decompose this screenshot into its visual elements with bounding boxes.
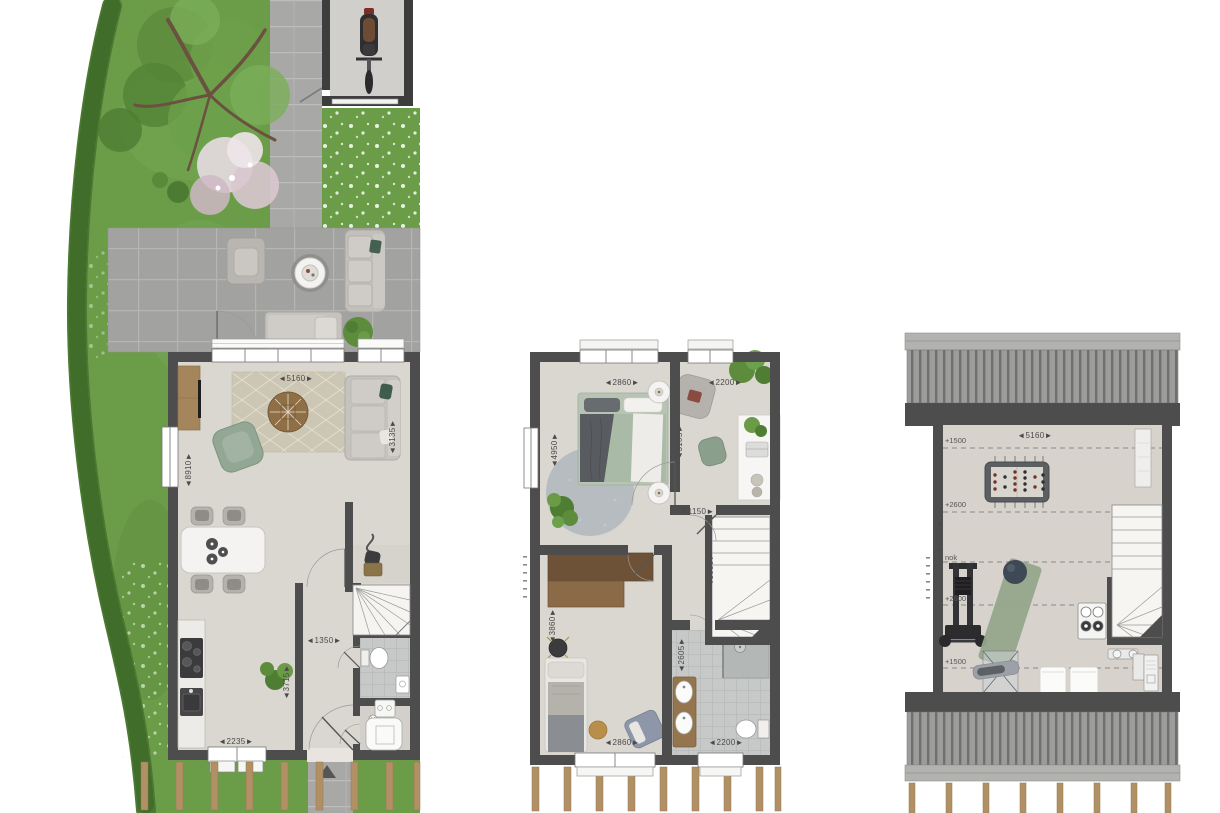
house-ground-floor (162, 339, 420, 778)
dim-bathroom-depth: ◄2605► (678, 637, 686, 672)
first-floor-drawing (520, 330, 790, 813)
laptop-icon (746, 442, 768, 457)
toilet-icon (370, 648, 388, 669)
master-bed (578, 393, 668, 485)
washbasin-small (396, 676, 409, 693)
dim-bathroom-width: ◄2200► (708, 739, 743, 747)
outdoor-sofa (345, 230, 385, 312)
dim-attic-width: ◄5160► (1017, 432, 1052, 440)
dim-bedroom1-width: ◄2860► (604, 379, 639, 387)
dim-ground-depth: ◄8910► (185, 452, 193, 487)
bush (167, 181, 189, 203)
dim-ground-width: ◄5160► (278, 375, 313, 383)
dim-hall-width: ◄1350► (306, 637, 341, 645)
ground-floor-drawing (60, 0, 430, 813)
height-line-label-1500-upper: +1500 (945, 437, 966, 445)
dim-bedroom2-depth: ◄3860► (549, 608, 557, 643)
height-line-label-2600-upper: +2600 (945, 501, 966, 509)
pouf (589, 721, 607, 739)
dim-bedroom1-depth: ◄4950► (551, 432, 559, 467)
dim-hall-depth: ◄3715► (283, 664, 291, 699)
wall-cabinet (1135, 429, 1151, 487)
floorplan-sheet: ◄5160► ◄8910► ◄3135► ◄1350► ◄3715► ◄2235… (0, 0, 1220, 813)
dim-landing-width: ◄1150► (680, 508, 715, 516)
ridge-label: nok (945, 554, 957, 562)
foundation-piles (532, 767, 781, 811)
nightstand-bottom (648, 482, 670, 504)
outdoor-coffee-table (291, 254, 329, 292)
plan-ground-floor: ◄5160► ◄8910► ◄3135► ◄1350► ◄3715► ◄2235… (60, 0, 430, 813)
dim-kitchen-window: ◄2235► (218, 738, 253, 746)
attic-drawing (895, 325, 1190, 813)
small-annotation-marks (523, 556, 527, 598)
toilet-icon (736, 720, 756, 738)
single-bed (545, 658, 587, 752)
window-bedroom1 (580, 350, 658, 363)
dim-office-width: ◄2200► (707, 379, 742, 387)
roof-edge-top (905, 333, 1180, 426)
front-path (308, 760, 353, 813)
dim-stair-depth: ◄3000► (707, 552, 715, 587)
window-bathroom (698, 753, 743, 767)
staircase (353, 585, 410, 635)
washbasin-1 (676, 681, 693, 703)
dim-attic-depth: ◄6205► (936, 519, 944, 554)
white-cabinet-2 (1070, 667, 1098, 695)
white-cabinet-1 (1040, 667, 1066, 695)
dim-living-right: ◄3135► (389, 419, 397, 454)
exercise-ball (1003, 560, 1027, 584)
nightstand-top (648, 381, 670, 403)
boiler-icon (375, 700, 395, 717)
outdoor-armchair (227, 238, 265, 284)
plan-attic: ◄5160► ◄6205► +1500 +2600 nok +2600 +150… (895, 325, 1190, 813)
staircase (1112, 505, 1162, 637)
tv-icon (198, 380, 201, 418)
height-line-label-2600-lower: +2600 (945, 595, 966, 603)
foundation-piles (909, 783, 1171, 813)
garage-door (332, 99, 398, 104)
plan-first-floor: ◄2860► ◄2200► ◄4950► ◄3105► ◄1150► ◄3000… (520, 330, 790, 813)
foosball-table (985, 456, 1049, 508)
roof-edge-bottom (905, 692, 1180, 781)
dim-bedroom2-width: ◄2860► (604, 739, 639, 747)
staircase (712, 517, 770, 637)
heat-pump-unit (1078, 603, 1106, 639)
washbasin-2 (676, 712, 693, 734)
small-annotation-marks (926, 557, 930, 599)
tv-cabinet (178, 366, 201, 430)
dim-office-depth: ◄3105► (676, 424, 684, 459)
height-line-label-1500-lower: +1500 (945, 658, 966, 666)
kitchen (178, 620, 205, 748)
washing-machine-icon (366, 718, 402, 750)
coffee-table (268, 392, 308, 432)
